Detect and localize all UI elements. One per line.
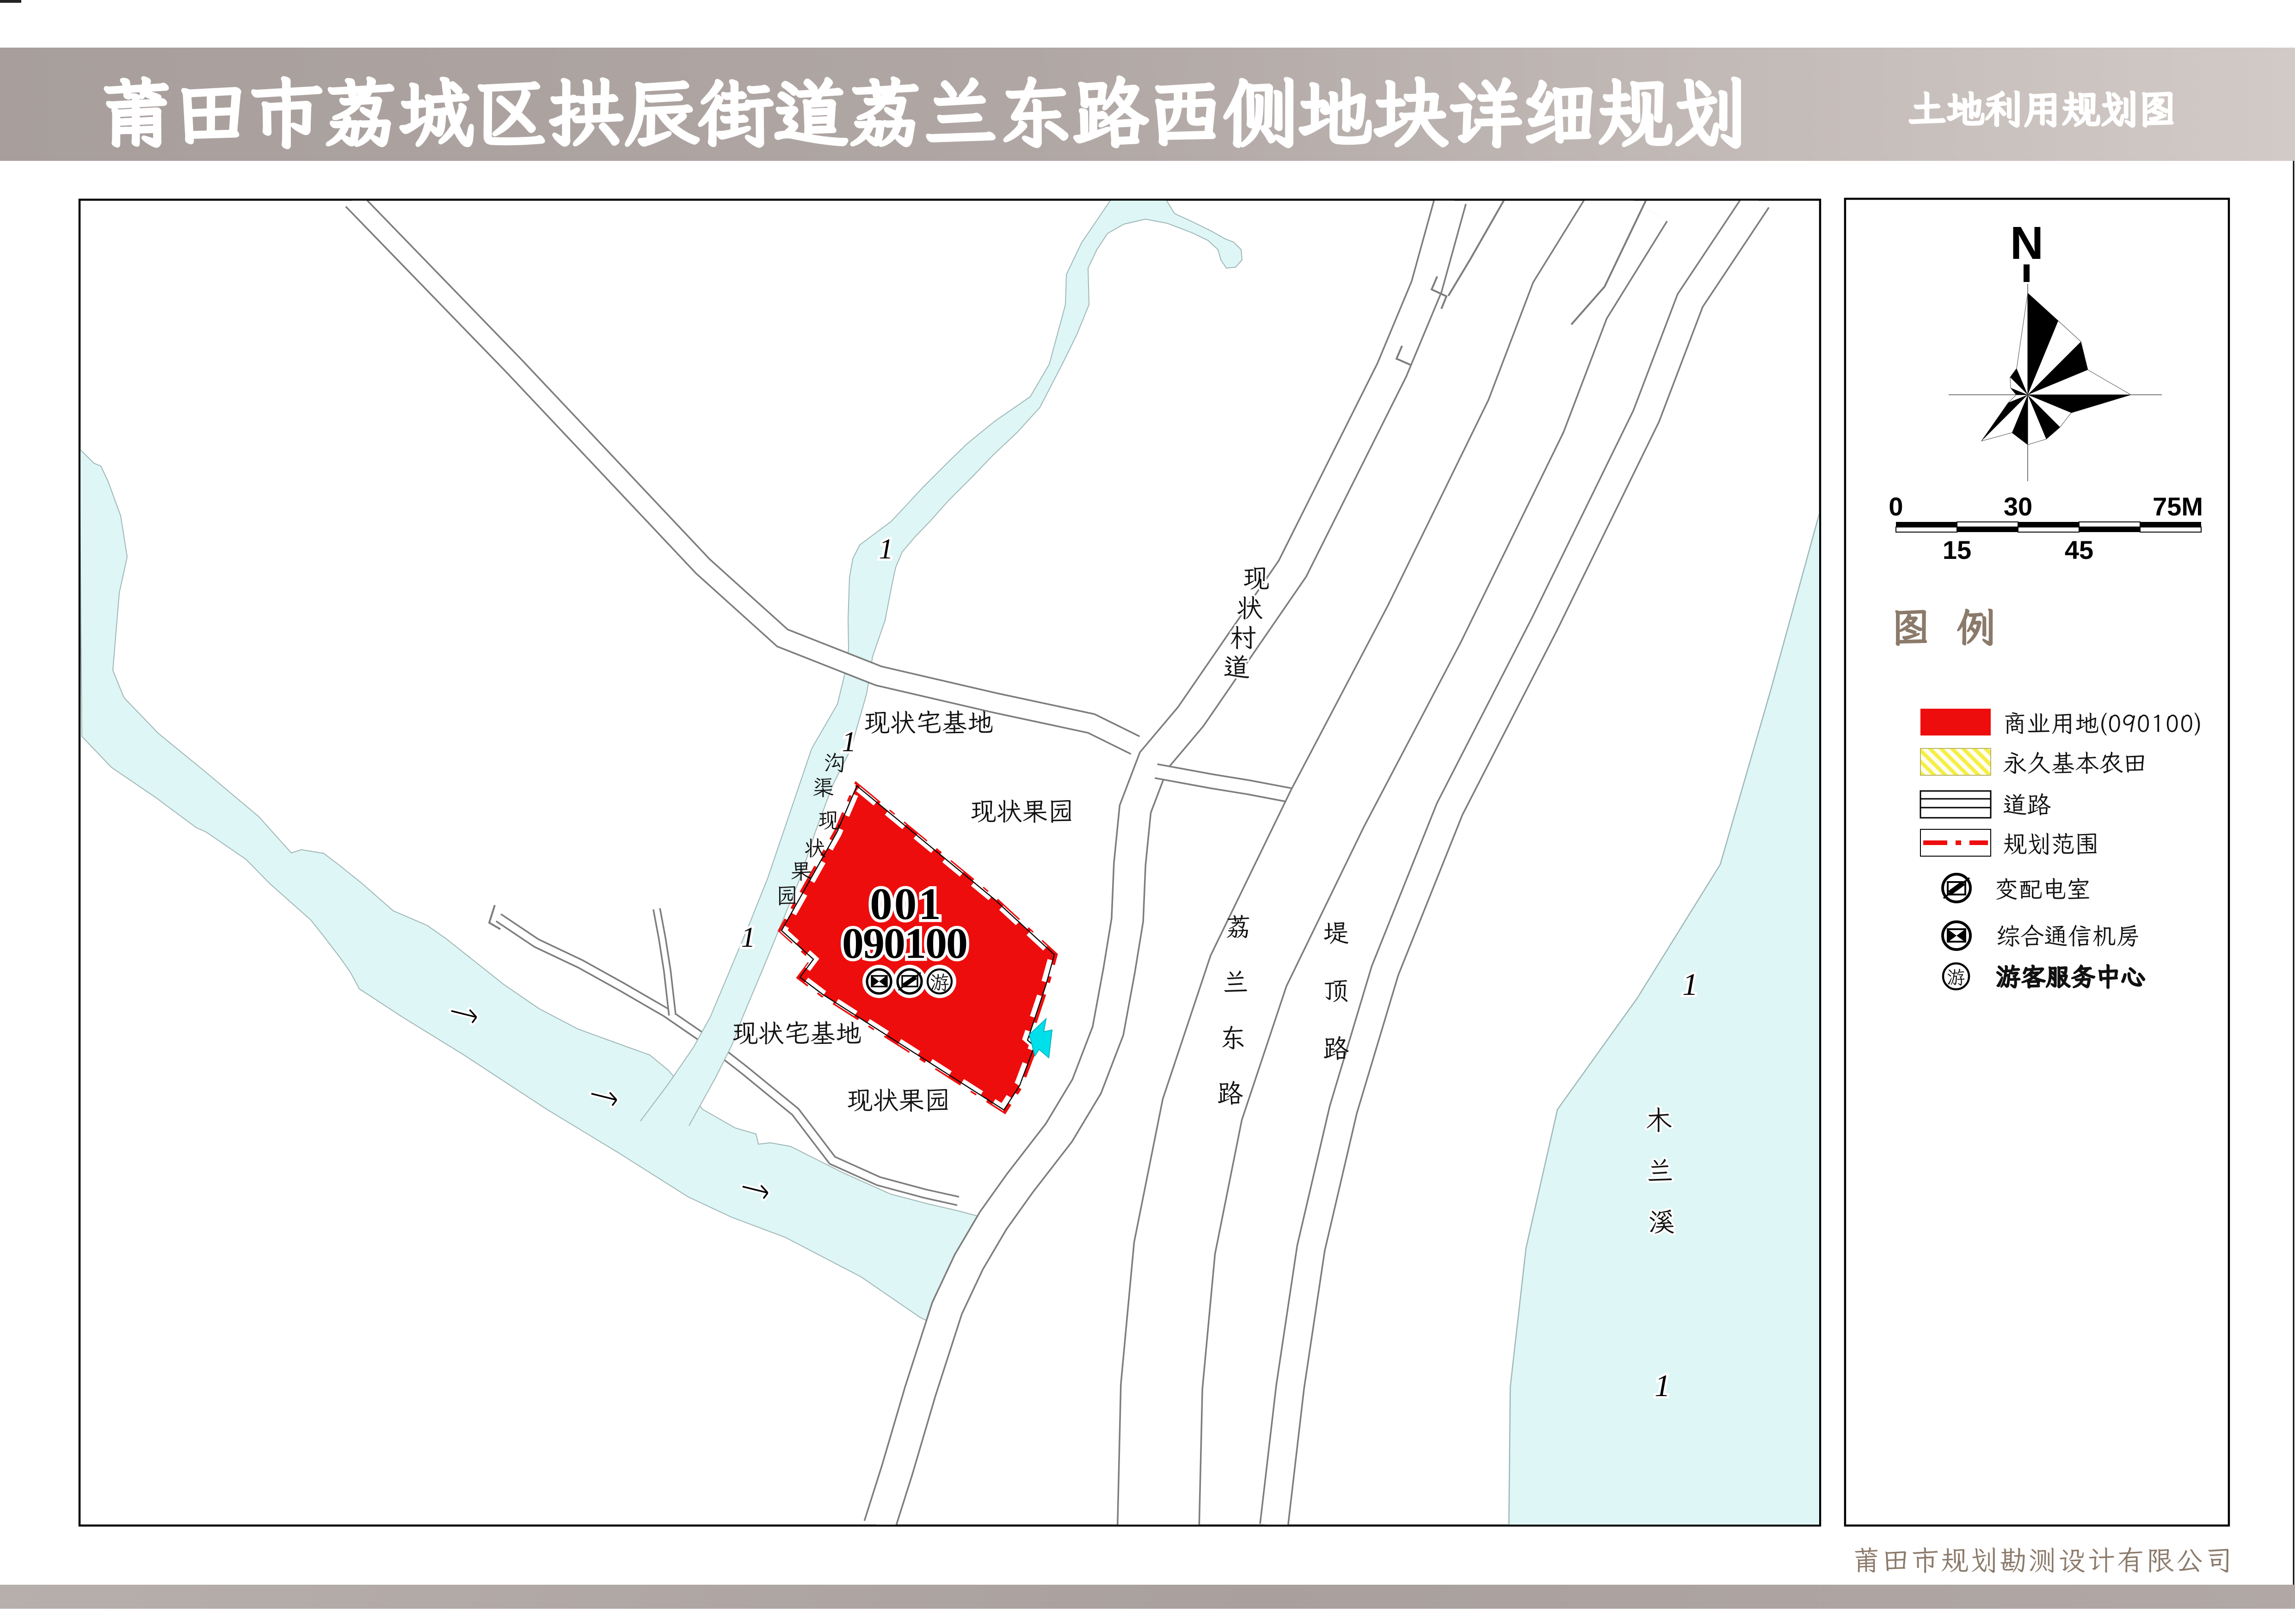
svg-text:1: 1 bbox=[842, 726, 856, 758]
svg-text:1: 1 bbox=[1655, 1368, 1670, 1403]
svg-text:N: N bbox=[2010, 217, 2043, 269]
svg-text:090100: 090100 bbox=[842, 919, 967, 968]
svg-text:1: 1 bbox=[879, 533, 893, 565]
svg-text:0: 0 bbox=[1889, 492, 1903, 521]
svg-text:15: 15 bbox=[1943, 535, 1971, 564]
svg-text:45: 45 bbox=[2065, 535, 2093, 564]
svg-text:75M: 75M bbox=[2153, 492, 2203, 521]
svg-text:1: 1 bbox=[1682, 967, 1698, 1002]
svg-text:1: 1 bbox=[741, 922, 756, 953]
svg-text:30: 30 bbox=[2004, 492, 2032, 521]
